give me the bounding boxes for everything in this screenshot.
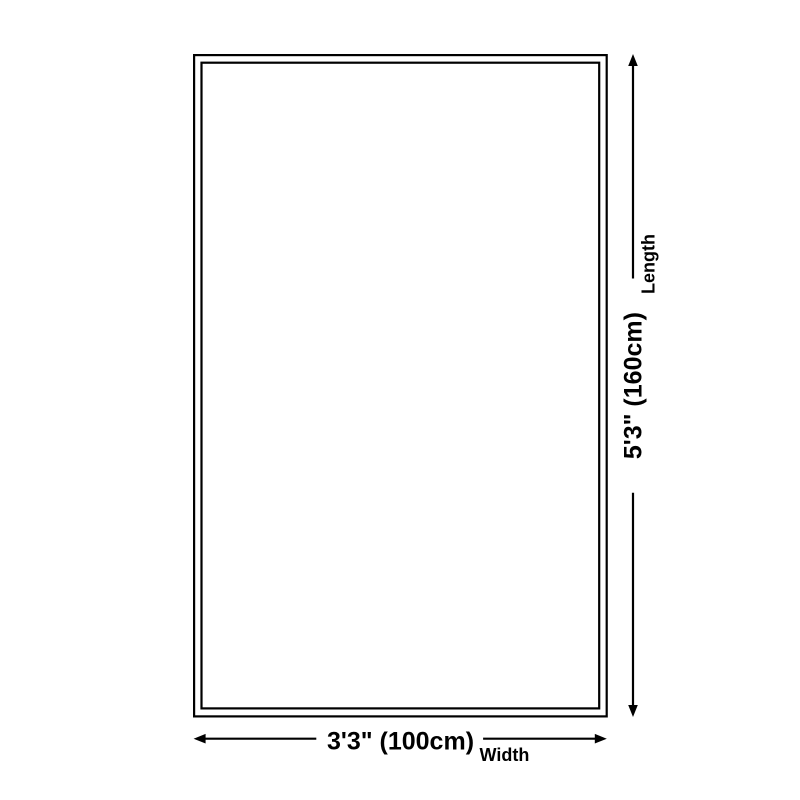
svg-text:5'3" (160cm): 5'3" (160cm) — [620, 312, 648, 459]
svg-text:Width: Width — [480, 745, 530, 765]
svg-text:Length: Length — [639, 234, 659, 294]
svg-text:3'3" (100cm): 3'3" (100cm) — [327, 728, 474, 756]
